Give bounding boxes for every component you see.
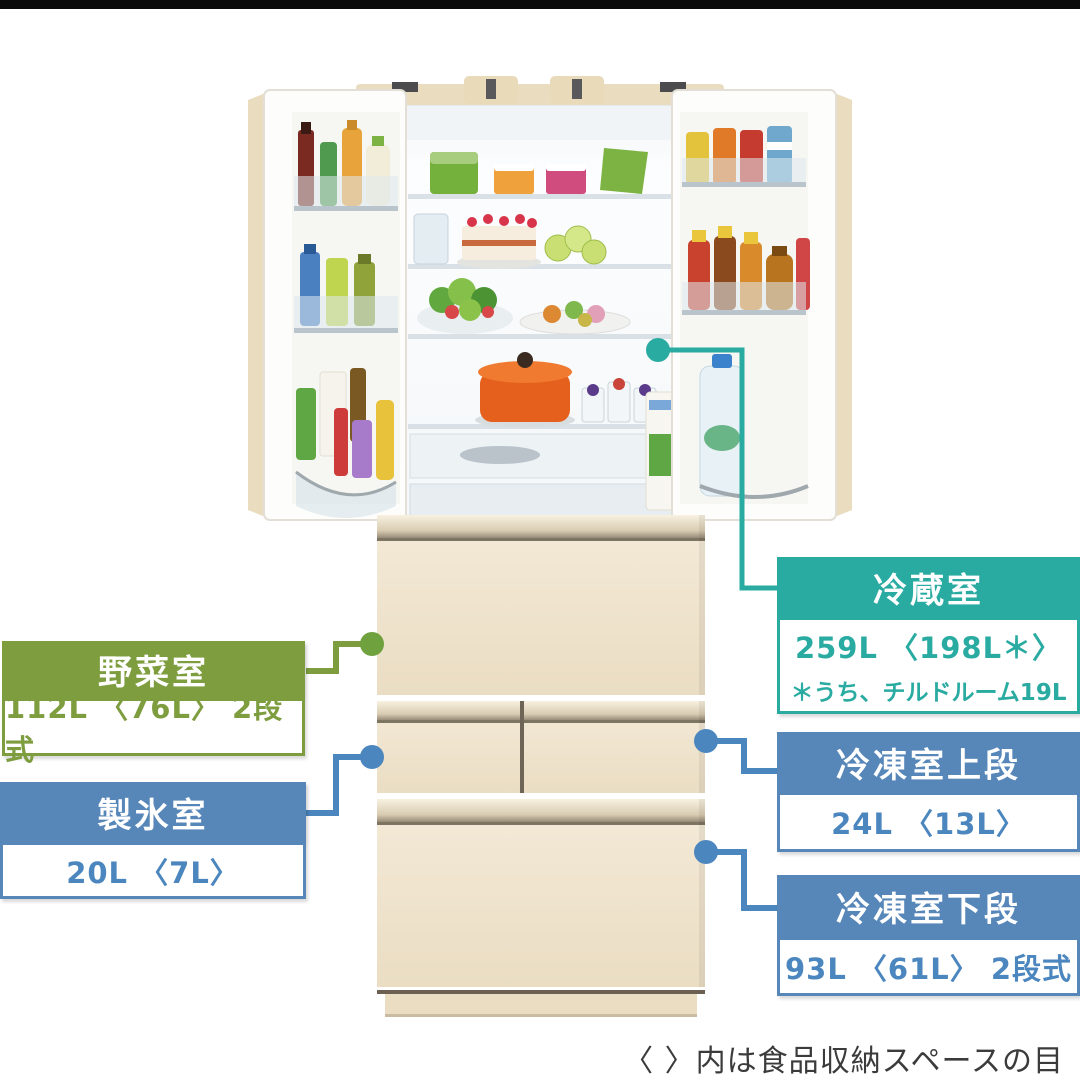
left-door — [248, 90, 406, 520]
freezer-upper-capacity: 24L 〈13L〉 — [777, 792, 1080, 852]
closed-cabinet — [377, 515, 705, 1017]
freezer-lower-capacity: 93L 〈61L〉 2段式 — [777, 937, 1080, 996]
ice-room-title: 製氷室 — [0, 782, 306, 842]
freezer-upper-title: 冷凍室上段 — [777, 732, 1080, 792]
refrigerator-room-title: 冷蔵室 — [777, 557, 1080, 617]
drawer-ice — [377, 701, 520, 793]
connector-freezer-lower — [694, 840, 778, 908]
fridge-top-beam — [356, 76, 724, 108]
connector-freezer-upper — [694, 729, 778, 771]
product-diagram-page: 野菜室 112L 〈76L〉 2段式 製氷室 20L 〈7L〉 冷蔵室 259L… — [0, 0, 1080, 1080]
ice-room-capacity: 20L 〈7L〉 — [0, 842, 306, 899]
refrigerator-room-capacity: 259L 〈198L＊〉 ＊うち、チルドルーム19L — [777, 617, 1080, 714]
refrigerator-capacity-note: ＊うち、チルドルーム19L — [791, 673, 1067, 707]
footnote: 〈 〉内は食品収納スペースの目安 — [604, 1036, 1064, 1080]
kick-plate — [377, 990, 705, 1017]
right-door — [672, 90, 852, 520]
drawer-vegetable — [377, 515, 705, 695]
refrigerator-capacity-main: 259L 〈198L＊〉 — [795, 625, 1062, 667]
drawer-freezer-lower — [377, 799, 705, 987]
connector-vegetable — [306, 632, 384, 671]
freezer-lower-title: 冷凍室下段 — [777, 875, 1080, 937]
vegetable-room-capacity: 112L 〈76L〉 2段式 — [2, 698, 305, 756]
connector-ice — [306, 745, 384, 813]
drawer-freezer-upper — [520, 701, 705, 793]
